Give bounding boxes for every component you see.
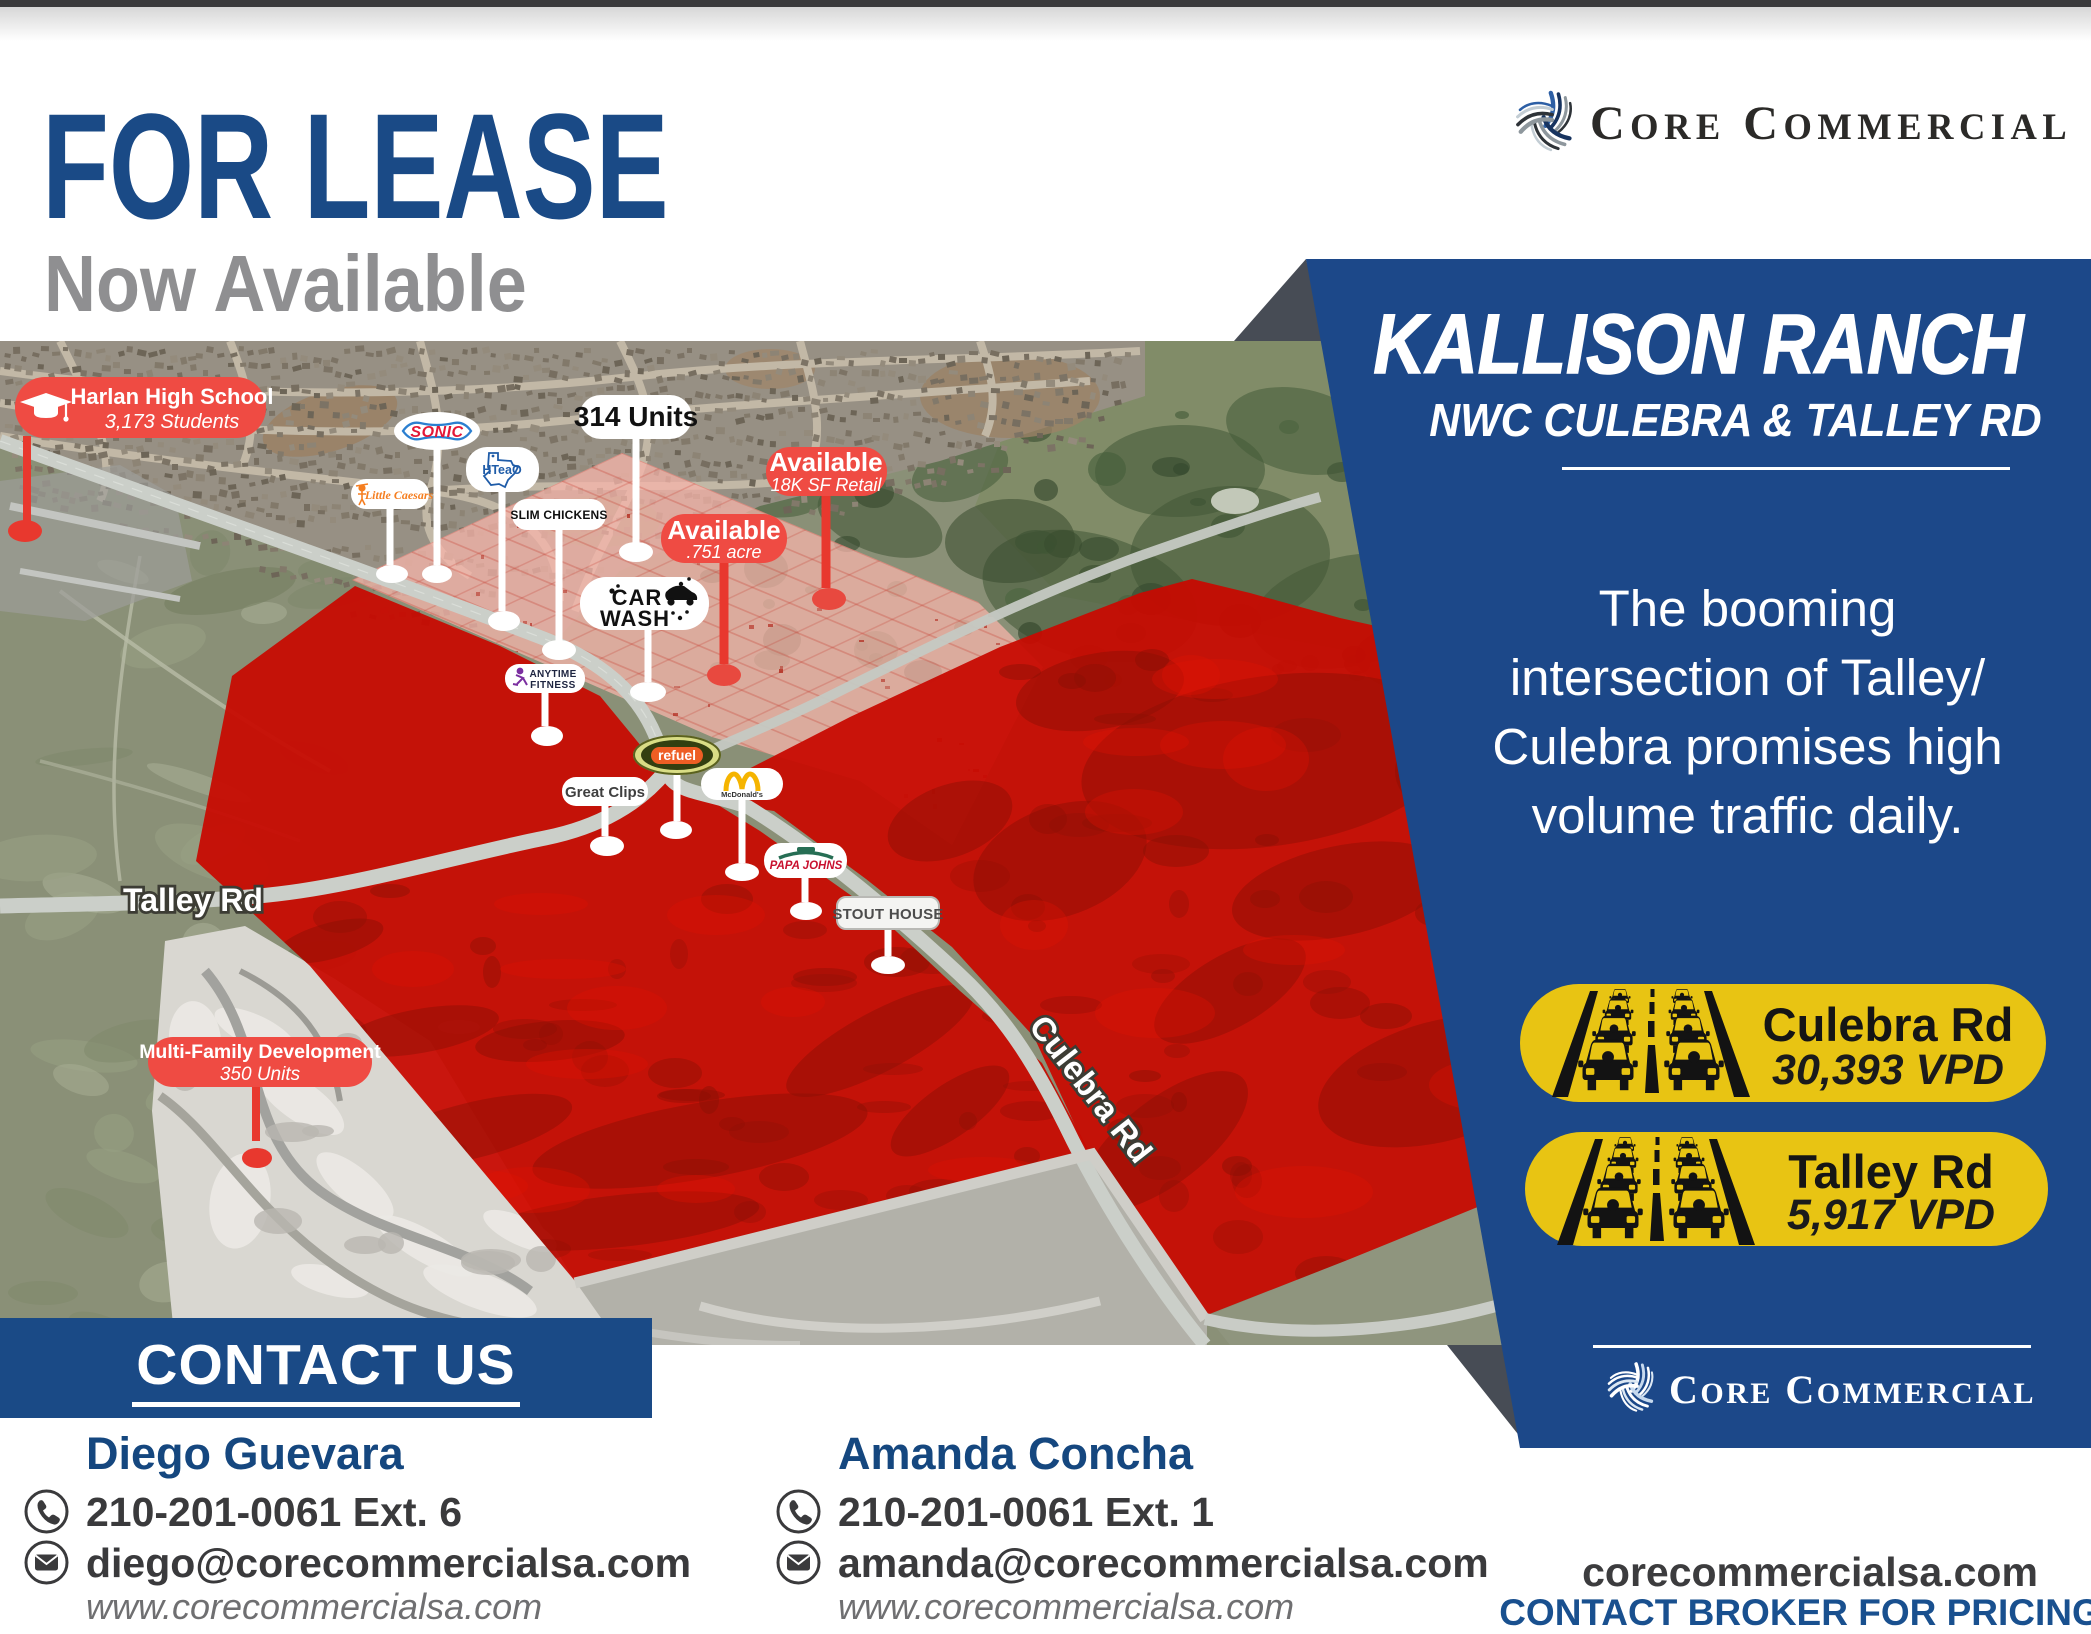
svg-text:PAPA JOHNS: PAPA JOHNS (770, 860, 843, 872)
svg-text:3,173 Students: 3,173 Students (105, 411, 240, 433)
svg-text:Available: Available (667, 515, 780, 545)
svg-text:Available: Available (769, 447, 882, 477)
svg-text:ANYTIME: ANYTIME (529, 669, 576, 680)
svg-text:Great Clips: Great Clips (565, 784, 645, 801)
svg-text:WASH: WASH (600, 606, 670, 631)
svg-text:SLIM CHICKENS: SLIM CHICKENS (510, 508, 607, 522)
svg-text:SONIC: SONIC (410, 424, 463, 441)
svg-text:314 Units: 314 Units (574, 401, 699, 432)
svg-text:FITNESS: FITNESS (530, 680, 576, 691)
svg-text:Multi-Family Development: Multi-Family Development (139, 1041, 381, 1063)
svg-text:Talley Rd: Talley Rd (123, 882, 263, 918)
svg-text:18K SF Retail: 18K SF Retail (771, 475, 883, 495)
svg-text:McDonald's: McDonald's (721, 790, 763, 799)
svg-text:refuel: refuel (658, 747, 696, 763)
svg-text:350 Units: 350 Units (220, 1064, 301, 1085)
svg-text:Little Caesars: Little Caesars (364, 488, 434, 502)
svg-text:Harlan High School: Harlan High School (71, 384, 274, 409)
svg-text:STOUT HOUSE: STOUT HOUSE (832, 906, 943, 923)
svg-text:HTeaO: HTeaO (482, 463, 522, 477)
svg-text:.751 acre: .751 acre (686, 542, 761, 562)
